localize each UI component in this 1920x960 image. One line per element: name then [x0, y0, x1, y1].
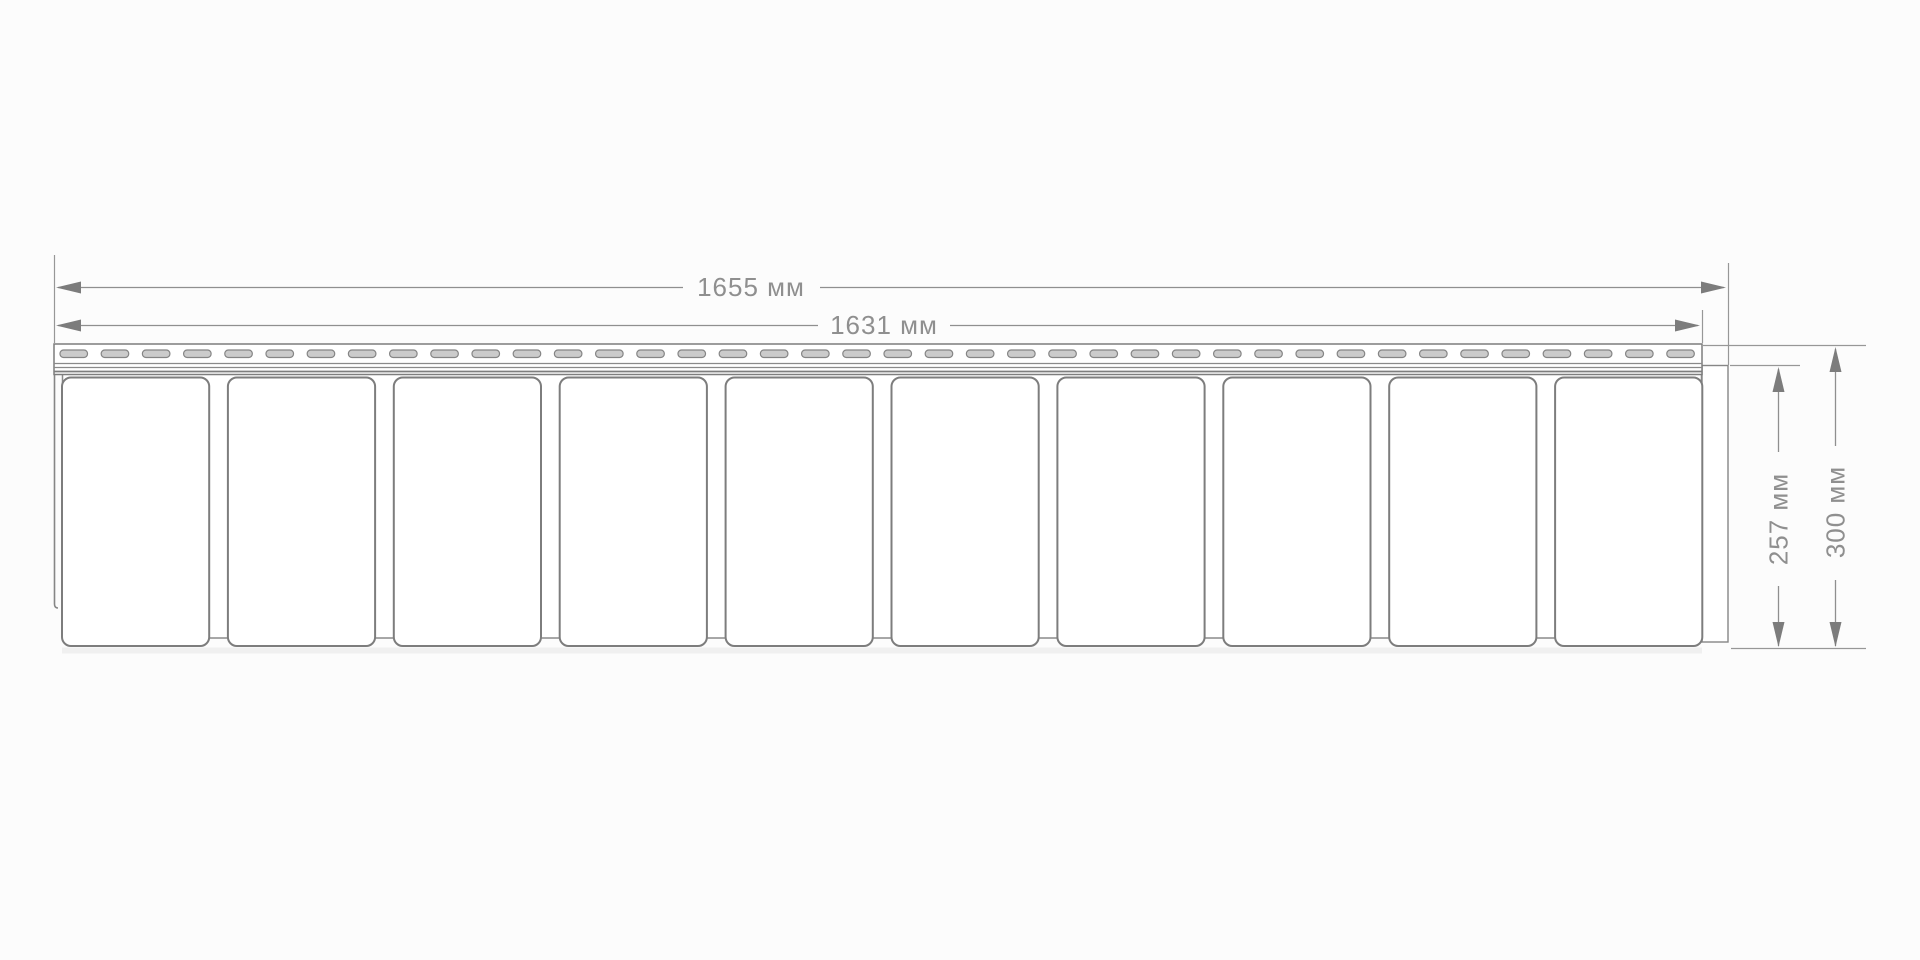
- panel-right-lock-strip: [1702, 366, 1728, 643]
- panel-left-flange-edge: [55, 344, 59, 608]
- perforation-slot: [1420, 350, 1448, 358]
- perforation-slot: [554, 350, 582, 358]
- perforation-slot: [513, 350, 541, 358]
- perforation-slot: [1172, 350, 1200, 358]
- arrow-up-icon: [1830, 347, 1842, 372]
- perforation-slot: [1049, 350, 1077, 358]
- perforation-slot: [802, 350, 830, 358]
- perforation-slot: [719, 350, 747, 358]
- perforation-slot: [1667, 350, 1695, 358]
- perforation-slot: [925, 350, 953, 358]
- perforation-slot: [431, 350, 459, 358]
- perforation-slot: [348, 350, 376, 358]
- dimension-total-height: 300 мм: [1821, 347, 1851, 647]
- perforation-slot: [1008, 350, 1036, 358]
- nail-hem-body: [54, 344, 1702, 375]
- dimension-label-total-height: 300 мм: [1821, 466, 1851, 558]
- arrow-right-icon: [1701, 282, 1726, 294]
- tile: [1223, 378, 1370, 647]
- panel-drawing-canvas: 1655 мм 1631 мм 257 мм 300 мм: [0, 0, 1920, 960]
- tile: [892, 378, 1039, 647]
- perforation-slot: [966, 350, 994, 358]
- perforation-slot: [1296, 350, 1324, 358]
- perforation-slot: [1461, 350, 1489, 358]
- tile: [1057, 378, 1204, 647]
- dimension-label-total-length: 1655 мм: [697, 272, 805, 302]
- panel: [54, 344, 1728, 654]
- perforation-slot: [266, 350, 294, 358]
- perforation-slot: [1090, 350, 1118, 358]
- tile: [228, 378, 375, 647]
- tile: [560, 378, 707, 647]
- perforation-slot: [678, 350, 706, 358]
- arrow-down-icon: [1830, 622, 1842, 647]
- dimension-label-nail-strip-length: 1631 мм: [830, 310, 938, 340]
- perforation-slot: [760, 350, 788, 358]
- perforation-slot: [307, 350, 335, 358]
- perforation-slot: [1626, 350, 1654, 358]
- dimension-panel-height: 257 мм: [1764, 367, 1794, 647]
- perforation-slot: [1543, 350, 1571, 358]
- perforation-slot: [1502, 350, 1530, 358]
- perforation-slot: [101, 350, 129, 358]
- arrow-down-icon: [1773, 622, 1785, 647]
- tile: [394, 378, 541, 647]
- perforation-slot: [596, 350, 624, 358]
- perforation-slot: [1255, 350, 1283, 358]
- tile: [62, 378, 209, 647]
- technical-drawing: 1655 мм 1631 мм 257 мм 300 мм: [0, 0, 1920, 960]
- perforation-slot: [142, 350, 170, 358]
- perforation-slot: [472, 350, 500, 358]
- arrow-up-icon: [1773, 367, 1785, 392]
- perforation-slot: [60, 350, 88, 358]
- panel-bottom-shadow: [62, 648, 1702, 654]
- tile: [1555, 378, 1702, 647]
- arrow-right-icon: [1675, 320, 1700, 332]
- perforation-slot: [1131, 350, 1159, 358]
- arrow-left-icon: [56, 282, 81, 294]
- tile: [1389, 378, 1536, 647]
- dimension-total-length: 1655 мм: [56, 272, 1726, 302]
- perforation-slot: [1584, 350, 1612, 358]
- perforation-slot: [390, 350, 418, 358]
- dimension-label-panel-height: 257 мм: [1764, 473, 1794, 565]
- perforation-slot: [225, 350, 253, 358]
- dimension-nail-strip-length: 1631 мм: [56, 310, 1700, 340]
- arrow-left-icon: [56, 320, 81, 332]
- perforation-slot: [884, 350, 912, 358]
- perforation-slot: [843, 350, 871, 358]
- perforation-slot: [1214, 350, 1242, 358]
- perforation-slot: [1337, 350, 1365, 358]
- tile: [726, 378, 873, 647]
- perforation-slot: [637, 350, 665, 358]
- perforation-slot: [1378, 350, 1406, 358]
- nail-hem: [54, 344, 1702, 375]
- perforation-slot: [184, 350, 212, 358]
